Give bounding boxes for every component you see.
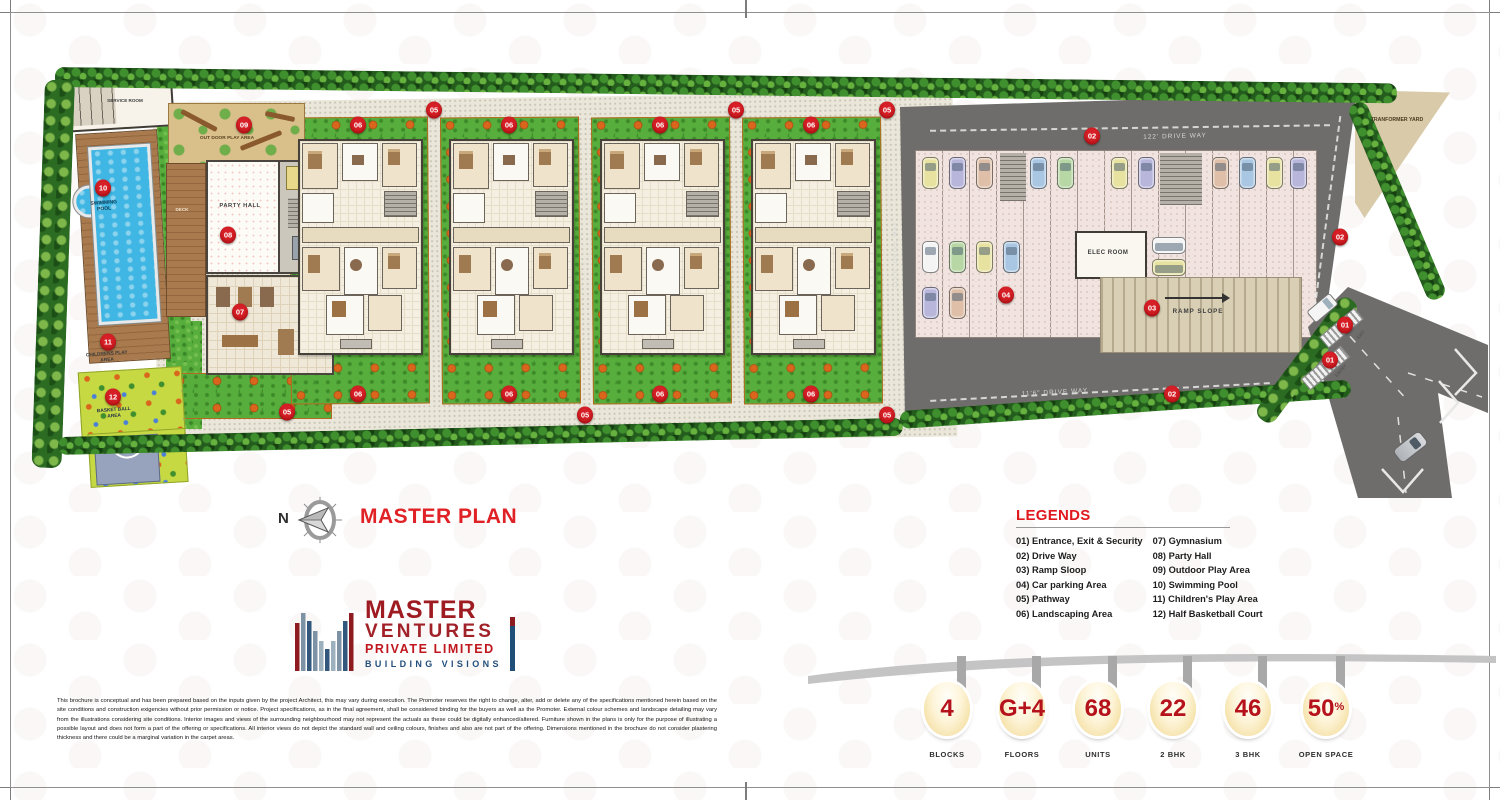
ramp-slope-label: RAMP SLOPE bbox=[1160, 308, 1236, 316]
service-room-stalls bbox=[68, 84, 116, 127]
stat-value: 68 bbox=[1085, 695, 1112, 723]
crop-mark bbox=[1490, 787, 1500, 788]
parked-car bbox=[1266, 157, 1283, 189]
stat-label: OPEN SPACE bbox=[1281, 750, 1371, 759]
master-plan-drawing bbox=[40, 55, 1495, 505]
legend-item: 05) Pathway bbox=[1016, 592, 1143, 607]
marker-08: 08 bbox=[220, 227, 236, 244]
marker-06: 06 bbox=[803, 386, 819, 403]
marker-06: 06 bbox=[350, 386, 366, 403]
play-equipment bbox=[180, 109, 218, 132]
apartment-block-floorplan bbox=[751, 139, 876, 355]
legend-item: 04) Car parking Area bbox=[1016, 578, 1143, 593]
crop-mark bbox=[0, 12, 10, 13]
marker-02: 02 bbox=[1332, 229, 1348, 246]
stat-badge: 68 bbox=[1075, 682, 1121, 736]
apartment-block-floorplan bbox=[600, 139, 725, 355]
apartment-block-floorplan bbox=[449, 139, 574, 355]
driveway-left-label: 115'6" DRIVE WAY bbox=[893, 200, 905, 310]
stat-label: 3 BHK bbox=[1203, 750, 1293, 759]
marker-05: 05 bbox=[879, 102, 895, 119]
legend-item: 01) Entrance, Exit & Security bbox=[1016, 534, 1143, 549]
legends-panel: LEGENDS 01) Entrance, Exit & Security02)… bbox=[1016, 507, 1246, 622]
parked-car bbox=[949, 241, 966, 273]
parked-car bbox=[1152, 259, 1186, 276]
parked-car bbox=[1138, 157, 1155, 189]
gym-equipment bbox=[216, 287, 230, 307]
crop-mark bbox=[1489, 788, 1490, 800]
parked-car bbox=[976, 241, 993, 273]
outdoor-play-area bbox=[168, 103, 305, 167]
play-equipment bbox=[265, 111, 295, 122]
brochure-page: SERVICE ROOM SWIMMING POOL CHILDRENS PLA… bbox=[0, 0, 1500, 800]
marker-04: 04 bbox=[998, 287, 1014, 304]
parked-car bbox=[1239, 157, 1256, 189]
legend-item: 02) Drive Way bbox=[1016, 549, 1143, 564]
gym-equipment bbox=[222, 335, 258, 347]
legend-column-1: 01) Entrance, Exit & Security02) Drive W… bbox=[1016, 534, 1143, 622]
legends-title: LEGENDS bbox=[1016, 507, 1246, 524]
crop-mark-center-top bbox=[745, 0, 747, 18]
stat-badge: 4 bbox=[924, 682, 970, 736]
stat-badge: 22 bbox=[1150, 682, 1196, 736]
legend-column-2: 07) Gymnasium08) Party Hall09) Outdoor P… bbox=[1153, 534, 1263, 622]
marker-06: 06 bbox=[803, 117, 819, 134]
marker-10: 10 bbox=[95, 180, 111, 197]
elec-room-label: ELEC ROOM bbox=[1075, 250, 1141, 258]
ramp-direction-arrow bbox=[1165, 297, 1223, 299]
logo-line2: VENTURES bbox=[365, 622, 502, 642]
marker-05: 05 bbox=[279, 404, 295, 421]
logo-name: MASTER bbox=[365, 598, 502, 622]
parked-car bbox=[1212, 157, 1229, 189]
stat-value: 22 bbox=[1160, 695, 1187, 723]
logo-end-bar bbox=[510, 617, 515, 671]
logo-line3: PRIVATE LIMITED bbox=[365, 642, 502, 657]
crop-mark bbox=[1489, 0, 1490, 12]
legend-item: 08) Party Hall bbox=[1153, 549, 1263, 564]
parked-car bbox=[922, 287, 939, 319]
marker-06: 06 bbox=[501, 386, 517, 403]
legend-item: 10) Swimming Pool bbox=[1153, 578, 1263, 593]
crop-mark bbox=[10, 788, 11, 800]
logo-building-icon bbox=[295, 609, 357, 671]
marker-12: 12 bbox=[105, 389, 121, 406]
stat-value: G+4 bbox=[999, 695, 1045, 723]
legend-item: 12) Half Basketball Court bbox=[1153, 607, 1263, 622]
deck-label: DECK bbox=[168, 207, 196, 213]
marker-01: 01 bbox=[1337, 317, 1353, 334]
legend-item: 09) Outdoor Play Area bbox=[1153, 563, 1263, 578]
marker-09: 09 bbox=[236, 117, 252, 134]
marker-05: 05 bbox=[728, 102, 744, 119]
marker-06: 06 bbox=[350, 117, 366, 134]
parked-car bbox=[1057, 157, 1074, 189]
crop-mark bbox=[0, 787, 10, 788]
marker-06: 06 bbox=[652, 386, 668, 403]
page-title: MASTER PLAN bbox=[360, 505, 517, 529]
company-logo: MASTER VENTURES PRIVATE LIMITED BUILDING… bbox=[295, 598, 515, 671]
apartment-block-floorplan bbox=[298, 139, 423, 355]
marker-05: 05 bbox=[879, 407, 895, 424]
legend-item: 06) Landscaping Area bbox=[1016, 607, 1143, 622]
stat-value: 46 bbox=[1235, 695, 1262, 723]
crop-mark-center-bottom bbox=[745, 782, 747, 800]
crop-mark bbox=[10, 0, 11, 12]
marker-03: 03 bbox=[1144, 300, 1160, 317]
marker-02: 02 bbox=[1084, 128, 1100, 145]
parked-car bbox=[1030, 157, 1047, 189]
parked-car bbox=[949, 157, 966, 189]
logo-tagline: BUILDING VISIONS bbox=[365, 658, 502, 671]
outdoor-play-label: OUT DOOR PLAY AREA bbox=[192, 136, 262, 142]
stat-value: 50% bbox=[1308, 695, 1344, 723]
stats-swoosh bbox=[806, 646, 1498, 694]
swimming-pool bbox=[88, 144, 161, 325]
compass-north-label: N bbox=[278, 510, 289, 527]
marker-05: 05 bbox=[426, 102, 442, 119]
stat-badge: 50% bbox=[1303, 682, 1349, 736]
parked-car bbox=[1111, 157, 1128, 189]
stat-value: 4 bbox=[940, 695, 953, 723]
legend-item: 07) Gymnasium bbox=[1153, 534, 1263, 549]
parked-car bbox=[976, 157, 993, 189]
parked-car bbox=[922, 157, 939, 189]
legend-item: 03) Ramp Sloop bbox=[1016, 563, 1143, 578]
marker-05: 05 bbox=[577, 407, 593, 424]
marker-11: 11 bbox=[100, 334, 116, 351]
service-room-label: SERVICE ROOM bbox=[95, 98, 155, 104]
parked-car bbox=[1290, 157, 1307, 189]
marker-06: 06 bbox=[501, 117, 517, 134]
deck bbox=[166, 163, 206, 317]
gym-equipment bbox=[260, 287, 274, 307]
gym-equipment bbox=[278, 329, 294, 355]
parked-car bbox=[1152, 237, 1186, 254]
parked-car bbox=[949, 287, 966, 319]
marker-07: 07 bbox=[232, 304, 248, 321]
marker-02: 02 bbox=[1164, 386, 1180, 403]
compass-icon bbox=[296, 496, 344, 544]
crop-mark bbox=[1490, 12, 1500, 13]
stat-badge: G+4 bbox=[999, 682, 1045, 736]
disclaimer-text: This brochure is conceptual and has been… bbox=[57, 697, 717, 743]
party-hall bbox=[206, 160, 282, 274]
stat-badge: 46 bbox=[1225, 682, 1271, 736]
legend-item: 11) Children's Play Area bbox=[1153, 592, 1263, 607]
parked-car bbox=[922, 241, 939, 273]
transformer-yard-label: TRANFORMER YARD bbox=[1358, 117, 1436, 124]
parked-car bbox=[1003, 241, 1020, 273]
marker-06: 06 bbox=[652, 117, 668, 134]
party-hall-label: PARTY HALL bbox=[206, 203, 274, 210]
legends-divider bbox=[1016, 527, 1230, 528]
marker-01: 01 bbox=[1322, 352, 1338, 369]
